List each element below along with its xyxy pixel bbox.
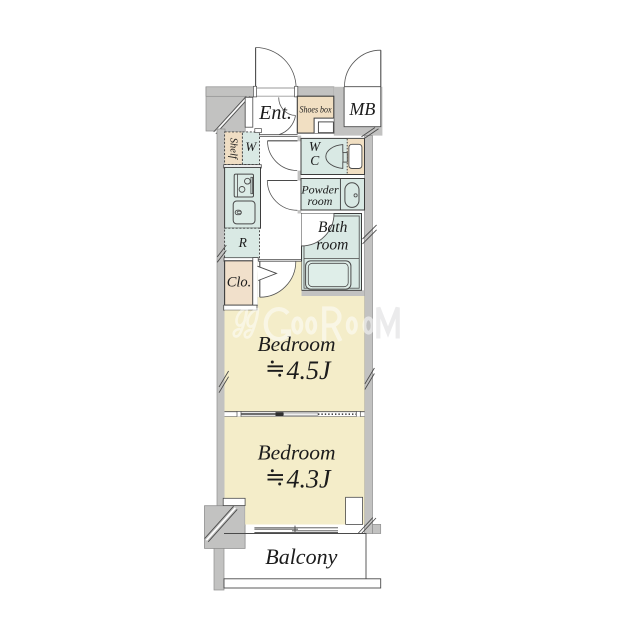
svg-text:Shoes box: Shoes box	[300, 104, 333, 115]
svg-text:4.3J: 4.3J	[287, 465, 333, 494]
svg-text:W: W	[309, 139, 322, 154]
svg-text:Bedroom: Bedroom	[257, 441, 335, 465]
svg-text:MB: MB	[348, 99, 375, 119]
svg-text:R: R	[238, 235, 248, 250]
svg-text:Balcony: Balcony	[265, 544, 337, 569]
svg-text:room: room	[316, 236, 348, 253]
svg-text:Clo.: Clo.	[227, 275, 252, 291]
svg-text:4.5J: 4.5J	[287, 356, 333, 385]
svg-text:Bath: Bath	[318, 219, 348, 236]
svg-text:Shelf: Shelf	[228, 138, 239, 161]
svg-text:W: W	[245, 139, 257, 154]
svg-text:room: room	[308, 194, 333, 208]
svg-text:C: C	[310, 153, 320, 168]
